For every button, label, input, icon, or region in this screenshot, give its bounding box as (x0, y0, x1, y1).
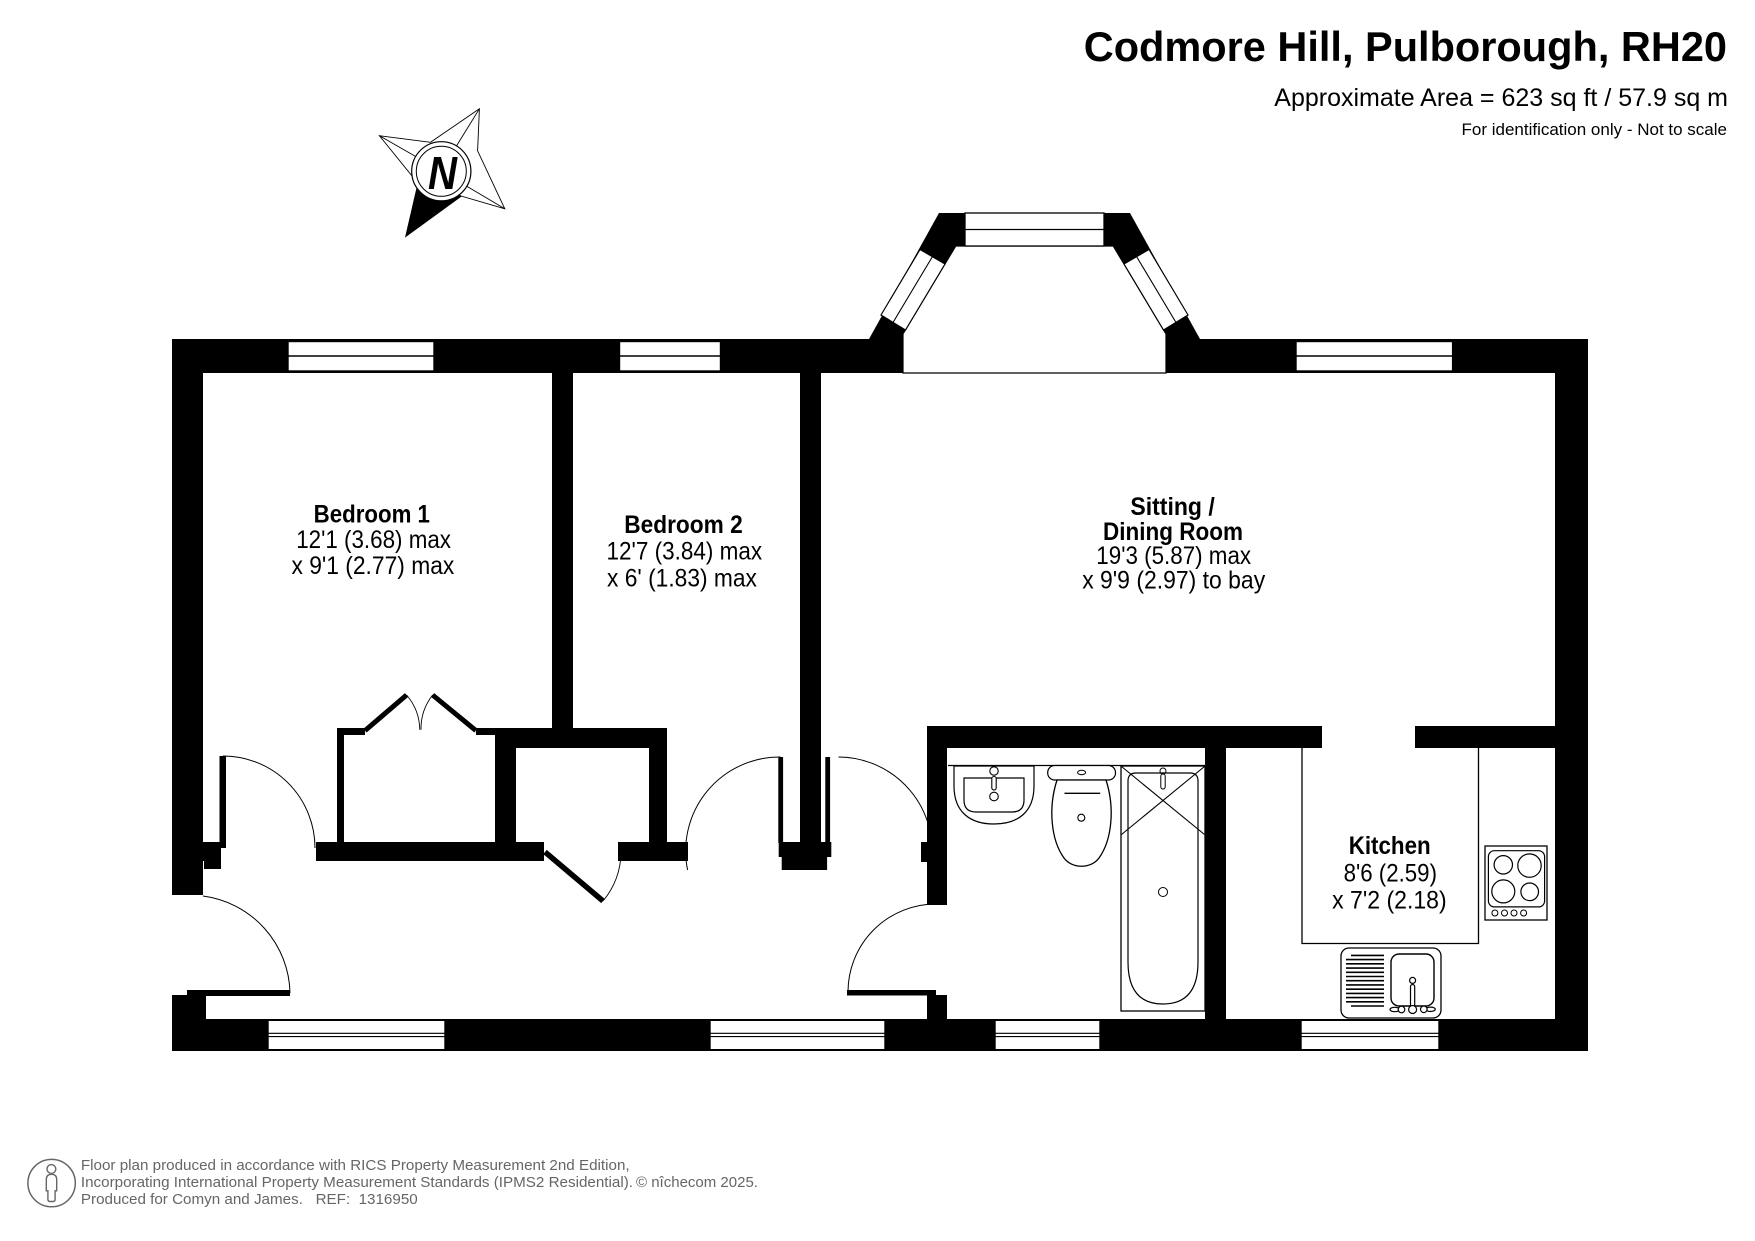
svg-text:N: N (428, 147, 458, 199)
svg-text:12'7 (3.84) max: 12'7 (3.84) max (607, 538, 763, 566)
svg-text:Bedroom 1: Bedroom 1 (314, 500, 430, 528)
svg-text:8'6 (2.59): 8'6 (2.59) (1344, 860, 1437, 888)
svg-text:Kitchen: Kitchen (1349, 832, 1431, 860)
svg-text:x 9'9 (2.97) to bay: x 9'9 (2.97) to bay (1082, 566, 1265, 594)
svg-text:x 6' (1.83) max: x 6' (1.83) max (607, 565, 757, 593)
svg-text:x 9'1 (2.77) max: x 9'1 (2.77) max (291, 552, 454, 580)
svg-text:12'1 (3.68) max: 12'1 (3.68) max (296, 526, 451, 554)
svg-text:x 7'2 (2.18): x 7'2 (2.18) (1332, 887, 1447, 915)
svg-text:Bedroom 2: Bedroom 2 (624, 511, 743, 539)
svg-text:Sitting /: Sitting / (1130, 493, 1214, 521)
